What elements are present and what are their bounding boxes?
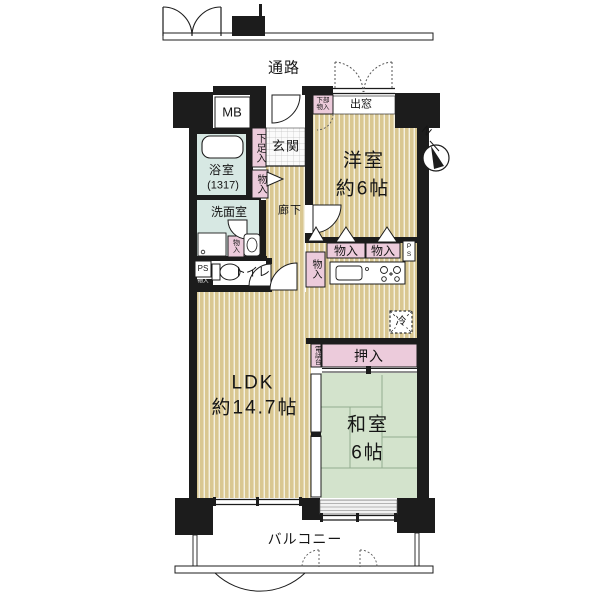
japanese-room-floor (321, 373, 417, 498)
corridor-structure (163, 4, 433, 40)
corridor-double-door (163, 7, 221, 36)
floor-plan-graphic (0, 0, 600, 600)
refrigerator-label: 冷 (395, 317, 408, 328)
bathtub-icon (202, 136, 243, 158)
toilet-label: トイレ (234, 266, 270, 278)
washroom-closet-label: 物入 (233, 239, 240, 253)
ldk-window (213, 497, 302, 506)
sink-icon (336, 266, 362, 280)
corridor-pillar (232, 16, 265, 36)
ps-right-label-2: S (407, 252, 411, 259)
shoe-box-label: 下足入 (254, 133, 264, 163)
ps-left-label: PS (198, 265, 209, 273)
bath-size-label: (1317) (207, 181, 239, 192)
washroom-label: 洗面室 (211, 206, 247, 218)
washer-icon (198, 233, 226, 256)
kitchen-counter (330, 262, 405, 284)
japanese-room-label: 和室 (347, 416, 389, 435)
washbasin-icon (244, 234, 260, 256)
ps-shelf-label: 物入 (197, 279, 208, 285)
ldk-label: LDK (232, 374, 275, 393)
floor-plan: 通路 バルコニー N 洋室 約6帖 LDK 約14.7帖 和室 6帖 玄関 廊下… (0, 0, 600, 600)
hallway-label: 廊下 (278, 206, 302, 217)
kitchen-closet-a-label: 物入 (334, 245, 358, 257)
western-room-size: 約6帖 (336, 180, 391, 199)
western-room-label: 洋室 (343, 152, 385, 171)
japanese-room-size: 6帖 (351, 444, 385, 463)
entrance-door (272, 95, 300, 123)
phone-stand-label: 電話台 (313, 345, 320, 365)
kitchen-closet-b-label: 物入 (371, 245, 395, 257)
bay-window-label: 出窓 (350, 100, 372, 111)
entrance-label: 玄関 (272, 140, 300, 153)
bath-label: 浴室 (209, 164, 235, 176)
meter-box-label: MB (222, 106, 242, 119)
hall-closet-label: 物入 (255, 174, 265, 194)
passage-label: 通路 (268, 61, 300, 76)
under-bay-label-2: 物入 (317, 105, 330, 112)
ldk-size: 約14.7帖 (212, 399, 299, 418)
ldk-floor (197, 292, 311, 498)
balcony-label: バルコニー (268, 532, 343, 546)
ldk-japanese-sliding-door (311, 374, 321, 497)
oshiire-label: 押入 (354, 349, 384, 363)
kitchen-closet-side-label: 物入 (310, 259, 320, 279)
ps-right-label-1: P (407, 244, 411, 251)
